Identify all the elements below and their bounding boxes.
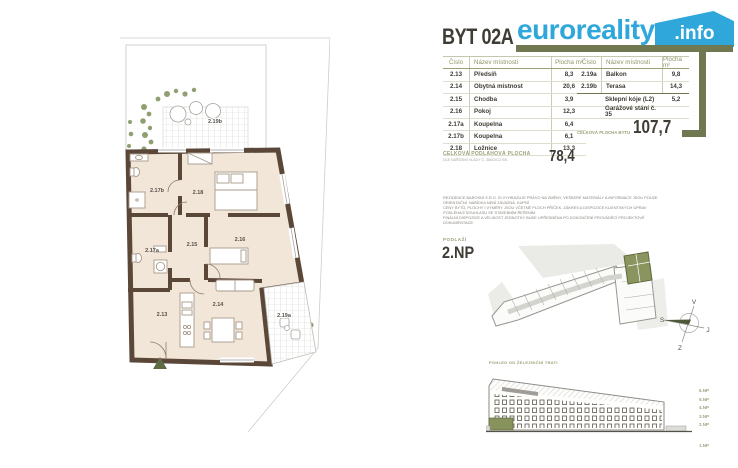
floor-area-total: CELKOVÁ PODLAHOVÁ PLOCHA DLE NAŘÍZENÍ VL… (443, 151, 530, 162)
elevation-caption: POHLED OD ŽELEZNIČNÍ TRATI (489, 360, 558, 365)
dining-table (212, 318, 234, 342)
side-table (185, 119, 191, 125)
floor-area-label: CELKOVÁ PODLAHOVÁ PLOCHA (443, 151, 530, 157)
accent-rule-stub (682, 130, 706, 137)
table-row: 2.17bKoupelna6,1 (443, 131, 586, 143)
col-number: Číslo (577, 57, 602, 68)
table-header: Číslo Název místnosti Plocha m² (577, 57, 689, 69)
building-elevation (486, 366, 698, 462)
lounge-chair (170, 106, 186, 122)
accent-rule-vertical (699, 45, 706, 137)
unit-title: BYT 02A (442, 24, 513, 50)
col-number: Číslo (443, 57, 470, 68)
highlighted-unit-facade (489, 418, 513, 430)
room-label-218: 2.18 (193, 190, 204, 196)
building-overview-plan (488, 242, 670, 362)
floor-area-value: 78,4 (549, 148, 575, 166)
balcony-table (285, 326, 290, 331)
corridor (508, 276, 622, 312)
total-area-label: CELKOVÁ PLOCHA BYTU (577, 130, 630, 135)
highlighted-unit (624, 252, 652, 284)
room-label-214: 2.14 (213, 302, 225, 308)
brand-logo-badge: .info (655, 11, 734, 47)
compass-icon: V S J Z (656, 282, 738, 366)
compass-north: S (660, 317, 665, 324)
room-label-217b: 2.17b (150, 188, 165, 194)
col-room-name: Název místnosti (470, 57, 552, 68)
balcony-area (264, 282, 316, 364)
kitchen-counter (180, 293, 194, 347)
room-label-219b: 2.19b (208, 119, 223, 125)
balcony-chair (291, 330, 300, 339)
elevation-floor-labels: 6.NP 5.NP 4.NP 3.NP 2.NP 1.NP (699, 388, 709, 448)
room-table-right: Číslo Název místnosti Plocha m² 2.19aBal… (577, 56, 689, 119)
col-area: Plocha m² (663, 57, 689, 68)
lounge-chair (190, 102, 203, 115)
floor-label: PODLAŽÍ (443, 237, 467, 242)
compass-west: Z (678, 345, 682, 352)
brochure-page: 2.17b 2.18 2.17a 2.15 2.16 2.13 2.14 2.1… (0, 0, 738, 468)
disclaimer-text: REZIDENCE BAROKNÍ S.R.O. SI VYHRAZUJE PR… (443, 195, 669, 225)
room-label-219a: 2.19a (277, 313, 292, 319)
room-label-216: 2.16 (235, 237, 246, 243)
table-row: 2.15Chodba3,9 (443, 94, 586, 106)
table-row: 2.17aKoupelna6,4 (443, 119, 586, 131)
room-table-left: Číslo Název místnosti Plocha m² 2.13Před… (443, 56, 586, 156)
table-row: 2.16Pokoj12,3 (443, 107, 586, 119)
table-row: 2.13Předsíň8,3 (443, 69, 586, 81)
apartment-floor-plan: 2.17b 2.18 2.17a 2.15 2.16 2.13 2.14 2.1… (70, 22, 330, 447)
brand-tld: .info (674, 21, 714, 47)
room-label-215: 2.15 (187, 242, 198, 248)
col-room-name: Název místnosti (602, 57, 663, 68)
table-row: 2.19aBalkon9,8 (577, 69, 689, 81)
compass-east: V (692, 299, 697, 306)
room-label-217a: 2.17a (145, 248, 160, 254)
floor-area-sublabel: DLE NAŘÍZENÍ VLÁDY Č. 366/2013 SB. (443, 158, 530, 162)
floor-value: 2.NP (442, 243, 474, 263)
table-row: 2.14Obytná místnost20,6 (443, 82, 586, 94)
lounge-chair (206, 104, 221, 119)
compass-needle (664, 320, 691, 325)
room-label-213: 2.13 (157, 312, 168, 318)
total-area-value: 107,7 (633, 117, 671, 138)
table-header: Číslo Název místnosti Plocha m² (443, 57, 586, 69)
table-row: 2.19bTerasa14,3 (577, 82, 689, 94)
compass-south: J (706, 327, 709, 334)
brand-logo-text: euroreality (517, 14, 655, 46)
